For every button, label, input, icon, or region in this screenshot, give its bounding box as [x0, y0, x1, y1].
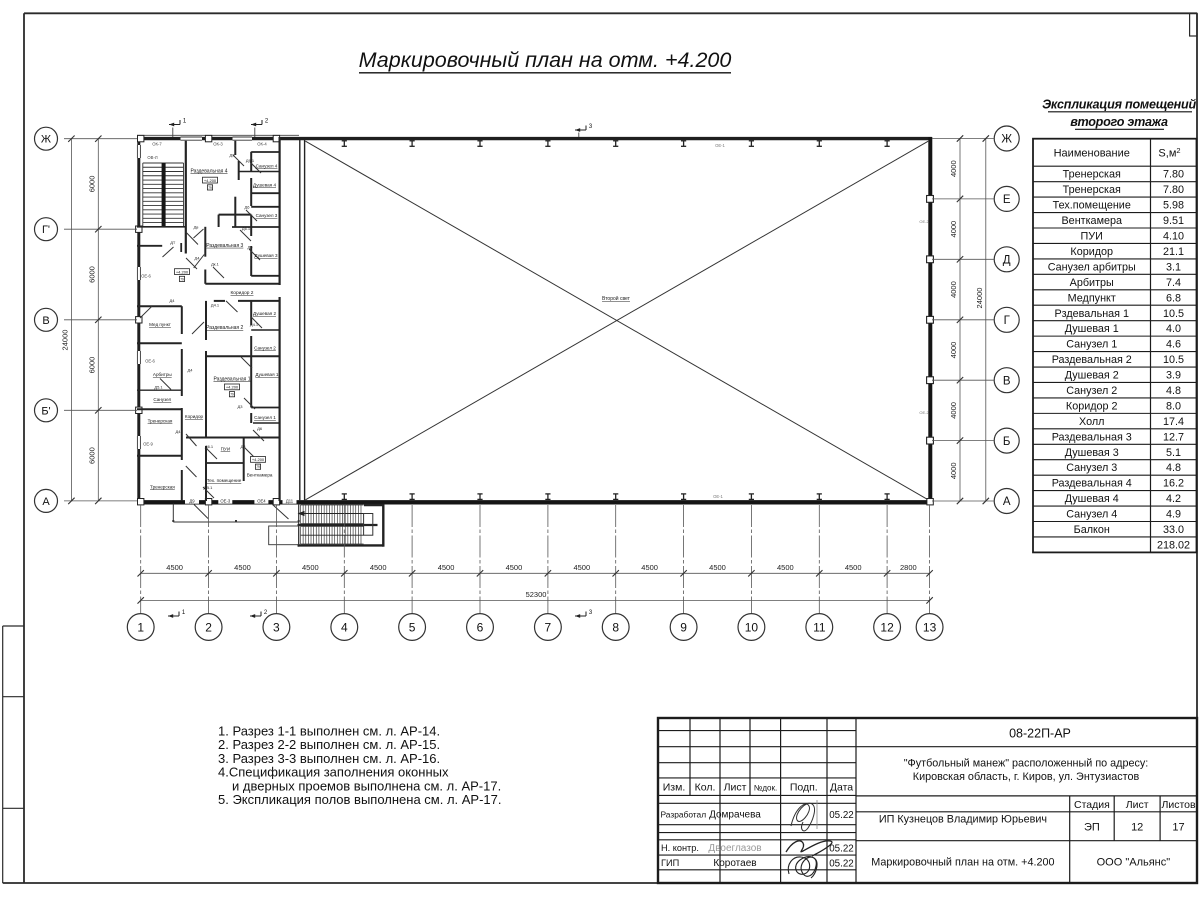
svg-text:Санузел 4: Санузел 4 — [1066, 509, 1117, 521]
svg-text:2: 2 — [205, 621, 212, 635]
svg-text:Коротаев: Коротаев — [713, 858, 756, 869]
svg-text:7.80: 7.80 — [1163, 169, 1184, 181]
svg-text:Душевая 3: Душевая 3 — [254, 253, 277, 258]
svg-text:Д4: Д4 — [188, 368, 194, 373]
svg-text:Мед пункт: Мед пункт — [149, 322, 172, 327]
svg-text:5: 5 — [409, 621, 416, 635]
svg-text:4.0: 4.0 — [1166, 323, 1181, 335]
svg-text:ООО "Альянс": ООО "Альянс" — [1097, 857, 1171, 869]
svg-text:второго этажа: второго этажа — [1070, 115, 1168, 129]
svg-text:Тренерская: Тренерская — [1063, 169, 1121, 181]
svg-text:10.5: 10.5 — [1163, 354, 1184, 366]
svg-text:52300: 52300 — [526, 590, 547, 599]
svg-text:79: 79 — [180, 277, 184, 281]
svg-text:4.10: 4.10 — [1163, 231, 1184, 243]
svg-text:4000: 4000 — [949, 342, 958, 359]
svg-text:ЭП: ЭП — [1084, 822, 1100, 834]
svg-text:6000: 6000 — [88, 176, 97, 193]
svg-text:Раздевальная 1: Раздевальная 1 — [213, 377, 250, 383]
svg-text:05.22: 05.22 — [829, 844, 854, 855]
svg-text:7.80: 7.80 — [1163, 184, 1184, 196]
svg-text:Второй свет: Второй свет — [602, 295, 631, 302]
svg-text:5.98: 5.98 — [1163, 200, 1184, 212]
svg-text:4500: 4500 — [438, 563, 455, 572]
svg-text:Раздевальная 2: Раздевальная 2 — [206, 325, 243, 331]
svg-text:Арбитры: Арбитры — [1070, 277, 1114, 289]
svg-text:4500: 4500 — [506, 563, 523, 572]
svg-text:Тех.помещение: Тех.помещение — [1053, 200, 1131, 212]
svg-text:ОЕ-6: ОЕ-6 — [145, 359, 155, 364]
svg-text:Дв: Дв — [194, 225, 199, 230]
svg-text:12: 12 — [880, 621, 894, 635]
svg-text:218.02: 218.02 — [1157, 539, 1190, 551]
svg-text:Д5.1: Д5.1 — [154, 385, 163, 390]
svg-text:Б': Б' — [41, 405, 50, 417]
svg-text:ОВ-Л: ОВ-Л — [147, 155, 157, 160]
svg-text:ИП Кузнецов Владимир Юрьевич: ИП Кузнецов Владимир Юрьевич — [879, 814, 1047, 826]
svg-text:Балкон: Балкон — [1074, 524, 1110, 536]
svg-text:21.1: 21.1 — [1163, 246, 1184, 258]
svg-text:Д9.1: Д9.1 — [246, 158, 255, 163]
svg-text:4500: 4500 — [370, 563, 387, 572]
svg-text:Раздевальная 4: Раздевальная 4 — [190, 169, 227, 175]
svg-text:Г': Г' — [42, 224, 50, 236]
svg-text:ДВ.1: ДВ.1 — [204, 485, 213, 490]
svg-text:Тех. помещение: Тех. помещение — [207, 478, 242, 483]
svg-text:4.8: 4.8 — [1166, 462, 1181, 474]
svg-text:13: 13 — [923, 621, 937, 635]
svg-text:Н. контр.: Н. контр. — [661, 843, 699, 853]
svg-text:4.9: 4.9 — [1166, 509, 1181, 521]
svg-text:ОЕ-2: ОЕ-2 — [919, 219, 929, 224]
svg-text:17: 17 — [1172, 822, 1184, 834]
svg-text:Ж: Ж — [41, 134, 51, 146]
svg-text:5. Экспликация полов выполнена: 5. Экспликация полов выполнена см. л. АР… — [218, 792, 502, 807]
svg-text:ОК-7: ОК-7 — [152, 142, 162, 147]
svg-text:4500: 4500 — [777, 563, 794, 572]
svg-text:Д8: Д8 — [241, 444, 247, 449]
svg-text:4000: 4000 — [949, 281, 958, 298]
svg-text:В: В — [1003, 375, 1011, 387]
svg-text:Холл: Холл — [1079, 416, 1104, 428]
svg-text:ОК-4: ОК-4 — [257, 142, 267, 147]
svg-text:Душевая 1: Душевая 1 — [1065, 323, 1119, 335]
svg-text:Д6: Д6 — [257, 426, 263, 431]
svg-text:Санузел 1: Санузел 1 — [1066, 339, 1117, 351]
svg-text:Санузел 4: Санузел 4 — [256, 164, 278, 169]
svg-text:Санузел 1: Санузел 1 — [254, 415, 276, 420]
svg-text:Изм.: Изм. — [663, 782, 686, 794]
svg-text:Маркировочный план на отм. +4.: Маркировочный план на отм. +4.200 — [359, 48, 732, 72]
svg-text:4500: 4500 — [641, 563, 658, 572]
svg-text:4.2: 4.2 — [1166, 493, 1181, 505]
svg-text:Коридор: Коридор — [185, 414, 204, 419]
svg-text:Д9: Д9 — [230, 153, 236, 158]
svg-text:+4.200: +4.200 — [204, 178, 217, 183]
svg-text:Рздевальная 1: Рздевальная 1 — [1054, 308, 1129, 320]
svg-text:Медпункт: Медпункт — [1068, 292, 1116, 304]
svg-text:Санузел 2: Санузел 2 — [1066, 385, 1117, 397]
svg-text:4500: 4500 — [302, 563, 319, 572]
svg-text:Тренерская: Тренерская — [1063, 184, 1121, 196]
svg-text:Б: Б — [1003, 436, 1011, 448]
svg-text:+4.200: +4.200 — [226, 385, 239, 390]
svg-text:Венткамера: Венткамера — [1061, 215, 1122, 227]
svg-text:ОЕ-9: ОЕ-9 — [143, 442, 153, 447]
svg-text:4.6: 4.6 — [1166, 339, 1181, 351]
svg-text:ОЕ-6: ОЕ-6 — [141, 274, 151, 279]
svg-text:ГИП: ГИП — [661, 858, 679, 868]
svg-text:Домрачева: Домрачева — [709, 810, 761, 821]
svg-text:ОЕ-1: ОЕ-1 — [715, 143, 725, 148]
svg-text:ОЕ4: ОЕ4 — [257, 498, 266, 503]
svg-text:4500: 4500 — [709, 563, 726, 572]
svg-text:Санузел арбитры: Санузел арбитры — [1048, 261, 1136, 273]
svg-text:24000: 24000 — [61, 330, 70, 351]
svg-text:79: 79 — [208, 186, 212, 190]
svg-text:05.22: 05.22 — [829, 859, 854, 870]
svg-text:А: А — [42, 496, 50, 508]
svg-text:33.0: 33.0 — [1163, 524, 1184, 536]
svg-text:Душевая 2: Душевая 2 — [253, 311, 276, 316]
svg-text:79: 79 — [230, 393, 234, 397]
svg-text:Коридор: Коридор — [1070, 246, 1113, 258]
svg-text:16.2: 16.2 — [1163, 478, 1184, 490]
svg-text:ОК-3: ОК-3 — [213, 142, 223, 147]
svg-text:4000: 4000 — [949, 402, 958, 419]
svg-text:4500: 4500 — [573, 563, 590, 572]
svg-text:4500: 4500 — [166, 563, 183, 572]
svg-text:Г: Г — [1004, 315, 1011, 327]
svg-text:6.8: 6.8 — [1166, 292, 1181, 304]
svg-text:8: 8 — [612, 621, 619, 635]
svg-text:Арбитры: Арбитры — [153, 372, 172, 377]
svg-text:Лист: Лист — [1126, 799, 1149, 811]
svg-text:В: В — [42, 315, 49, 327]
svg-text:ДТ: ДТ — [170, 240, 176, 245]
svg-text:Д6.1: Д6.1 — [242, 226, 251, 231]
svg-text:Санузел 3: Санузел 3 — [256, 213, 278, 218]
svg-text:Д6: Д6 — [248, 245, 254, 250]
svg-text:6000: 6000 — [88, 357, 97, 374]
svg-text:Раздевальная 4: Раздевальная 4 — [1052, 478, 1132, 490]
svg-text:Санузел 2: Санузел 2 — [254, 346, 276, 351]
svg-text:1: 1 — [137, 621, 144, 635]
svg-text:Душевая 4: Душевая 4 — [1065, 493, 1119, 505]
svg-text:10: 10 — [745, 621, 759, 635]
svg-text:Экспликация помещений: Экспликация помещений — [1042, 98, 1196, 112]
svg-text:Д4.1: Д4.1 — [211, 303, 220, 308]
svg-text:12: 12 — [1131, 822, 1143, 834]
svg-text:ПУИ: ПУИ — [1081, 231, 1103, 243]
svg-text:4000: 4000 — [949, 221, 958, 238]
svg-text:4000: 4000 — [949, 462, 958, 479]
svg-text:12.7: 12.7 — [1163, 431, 1184, 443]
svg-text:Е: Е — [1003, 194, 1011, 206]
svg-text:6000: 6000 — [88, 266, 97, 283]
svg-text:Д4: Д4 — [195, 256, 201, 261]
svg-text:А: А — [1003, 496, 1011, 508]
svg-text:9.51: 9.51 — [1163, 215, 1184, 227]
svg-text:Раздевальная 3: Раздевальная 3 — [1052, 431, 1132, 443]
svg-text:Наименование: Наименование — [1054, 148, 1130, 160]
svg-text:Двоеглазов: Двоеглазов — [708, 843, 761, 854]
svg-text:6: 6 — [477, 621, 484, 635]
svg-text:Раздевальная 3: Раздевальная 3 — [206, 243, 243, 249]
svg-text:+4.200: +4.200 — [252, 457, 265, 462]
svg-text:Коридор 2: Коридор 2 — [1066, 400, 1118, 412]
svg-text:Душевая 4: Душевая 4 — [253, 183, 276, 188]
svg-text:Кировская область, г. Киров, у: Кировская область, г. Киров, ул. Энтузиа… — [913, 771, 1140, 783]
svg-text:ОЕ-3: ОЕ-3 — [220, 498, 230, 503]
svg-text:79: 79 — [256, 465, 260, 469]
svg-text:ОЕ-2: ОЕ-2 — [919, 410, 929, 415]
svg-text:Венткамера: Венткамера — [247, 473, 273, 478]
svg-text:08-22П-АР: 08-22П-АР — [1009, 727, 1071, 741]
svg-text:4: 4 — [341, 621, 348, 635]
svg-text:Стадия: Стадия — [1074, 799, 1110, 811]
svg-text:Коридор 2: Коридор 2 — [231, 290, 254, 296]
svg-text:Ж: Ж — [1001, 134, 1012, 146]
svg-text:Тренерская: Тренерская — [150, 485, 175, 490]
svg-text:Душевая 1: Душевая 1 — [255, 372, 278, 377]
svg-text:Дк.1: Дк.1 — [211, 262, 220, 267]
svg-text:4000: 4000 — [949, 160, 958, 177]
svg-text:Подп.: Подп. — [790, 782, 818, 794]
svg-text:3.1: 3.1 — [1166, 261, 1181, 273]
svg-text:05.22: 05.22 — [829, 810, 854, 821]
svg-text:10.5: 10.5 — [1163, 308, 1184, 320]
svg-text:Тренерская: Тренерская — [148, 419, 173, 424]
svg-text:3.9: 3.9 — [1166, 370, 1181, 382]
svg-text:4500: 4500 — [845, 563, 862, 572]
svg-text:Д4.1: Д4.1 — [250, 322, 259, 327]
svg-text:Раздевальная 2: Раздевальная 2 — [1052, 354, 1132, 366]
svg-text:Санузел 3: Санузел 3 — [1066, 462, 1117, 474]
svg-text:11: 11 — [813, 621, 826, 635]
svg-text:Разработал: Разработал — [661, 810, 707, 820]
svg-text:+4.200: +4.200 — [176, 269, 189, 274]
svg-text:Лист: Лист — [724, 782, 747, 794]
svg-text:Маркировочный план на отм. +4.: Маркировочный план на отм. +4.200 — [871, 857, 1054, 869]
svg-text:9: 9 — [680, 621, 687, 635]
svg-text:Д4: Д4 — [176, 429, 182, 434]
svg-text:7: 7 — [545, 621, 552, 635]
svg-text:8.0: 8.0 — [1166, 400, 1181, 412]
svg-text:Д: Д — [1003, 255, 1011, 267]
svg-text:Листов: Листов — [1161, 799, 1196, 811]
svg-text:5.1: 5.1 — [1166, 447, 1181, 459]
svg-text:24000: 24000 — [975, 288, 984, 309]
svg-text:4.8: 4.8 — [1166, 385, 1181, 397]
svg-text:Д6.1: Д6.1 — [205, 444, 214, 449]
svg-text:Душевая 3: Душевая 3 — [1065, 447, 1119, 459]
svg-text:ПУИ: ПУИ — [221, 447, 231, 452]
svg-text:Дата: Дата — [830, 782, 853, 794]
svg-text:Д9: Д9 — [189, 498, 195, 503]
svg-text:Д6: Д6 — [245, 205, 251, 210]
svg-text:Д3: Д3 — [238, 404, 244, 409]
svg-text:2800: 2800 — [900, 563, 917, 572]
svg-text:4500: 4500 — [234, 563, 251, 572]
svg-text:6000: 6000 — [88, 447, 97, 464]
svg-text:"Футбольный манеж" расположенн: "Футбольный манеж" расположенный по адре… — [904, 758, 1149, 770]
svg-text:Д4: Д4 — [170, 298, 176, 303]
svg-text:3: 3 — [273, 621, 280, 635]
svg-text:Кол.: Кол. — [695, 782, 716, 794]
svg-text:Санузел: Санузел — [153, 397, 171, 402]
svg-text:Д11: Д11 — [286, 498, 294, 503]
svg-text:17.4: 17.4 — [1163, 416, 1184, 428]
svg-text:№док.: №док. — [754, 784, 777, 793]
svg-text:ОЕ-1: ОЕ-1 — [713, 494, 723, 499]
svg-text:Душевая 2: Душевая 2 — [1065, 370, 1119, 382]
svg-text:7.4: 7.4 — [1166, 277, 1181, 289]
